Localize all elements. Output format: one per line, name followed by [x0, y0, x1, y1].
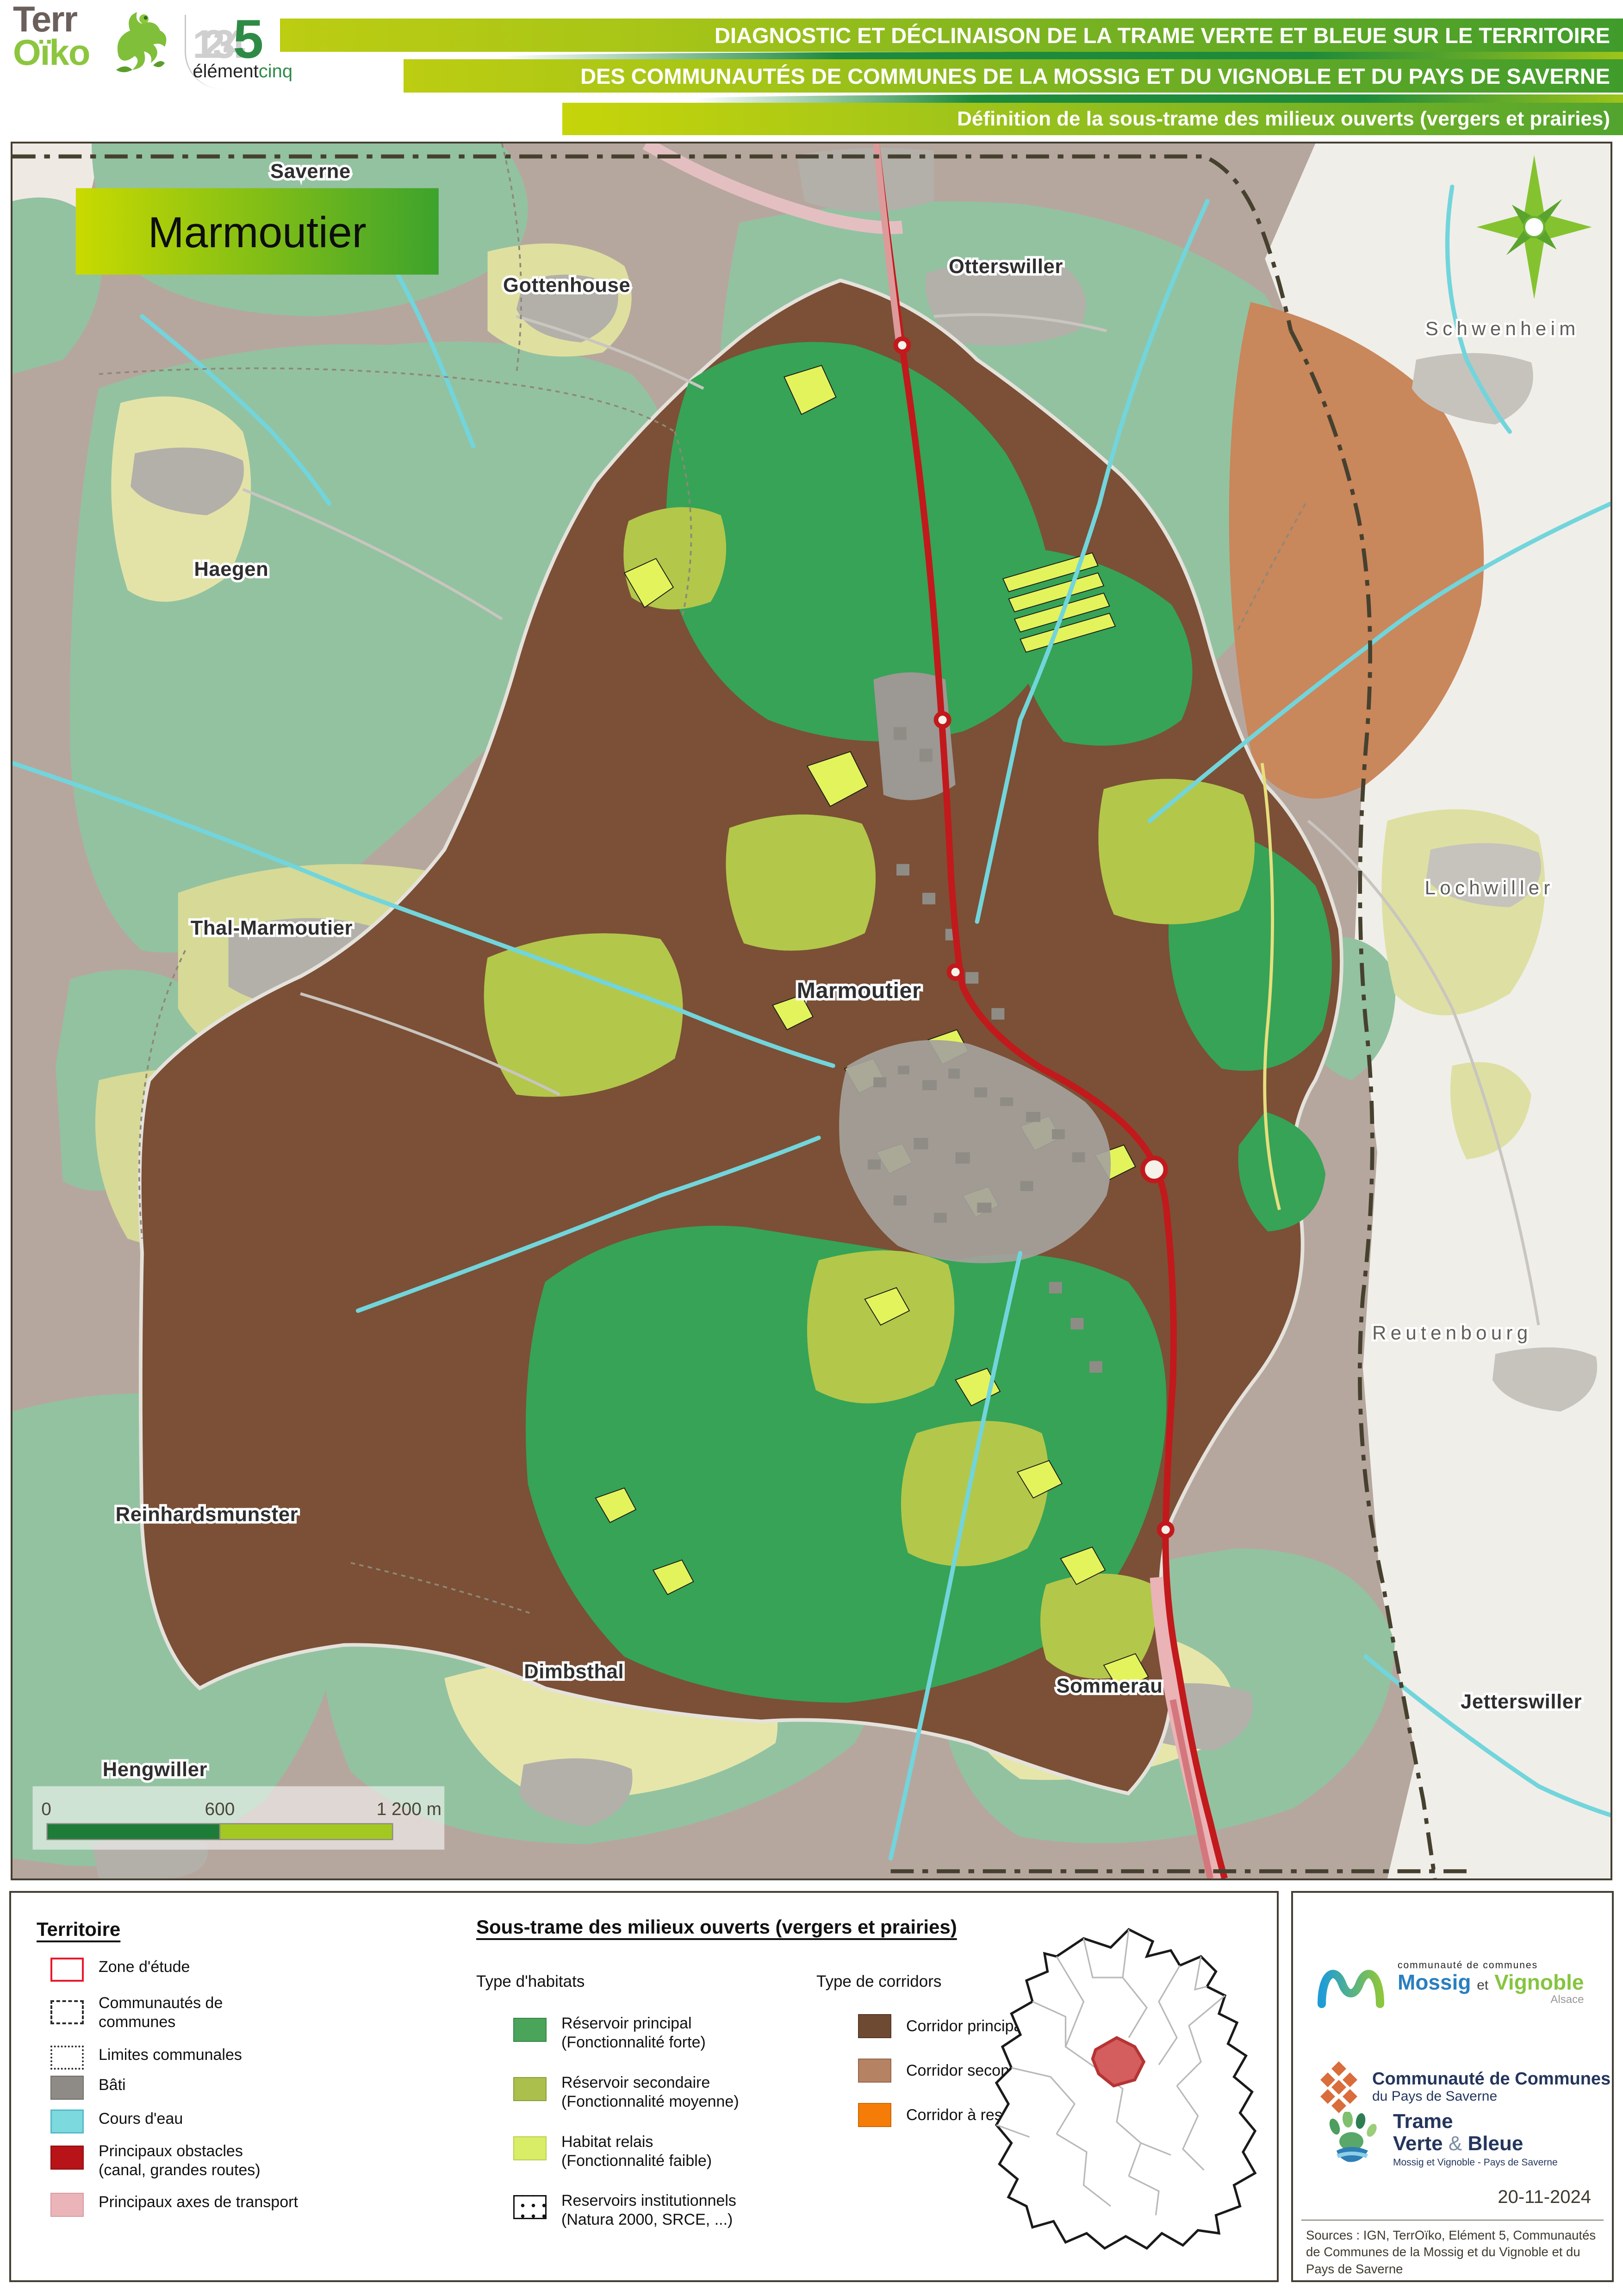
frog-icon	[102, 3, 172, 81]
reservoir-secondaire-swatch	[513, 2077, 547, 2101]
habitat-relais-swatch	[513, 2136, 547, 2160]
panel-divider	[1301, 2220, 1604, 2221]
header: Terr Oïko 12345 élémentcinq DIAGNOSTIC E…	[0, 0, 1623, 139]
legend-item-habitat-relais: Habitat relais (Fonctionnalité faible)	[513, 2133, 712, 2171]
legend-item-limites: Limites communales	[50, 2046, 242, 2070]
cours-eau-swatch	[50, 2109, 84, 2134]
elementcinq-five: 5	[233, 9, 264, 70]
reservoir-principal-swatch	[513, 2018, 547, 2042]
town-label: Reutenbourg	[1372, 1322, 1532, 1344]
map-title-line1: DIAGNOSTIC ET DÉCLINAISON DE LA TRAME VE…	[715, 23, 1610, 48]
zone-etude-label: Zone d'étude	[99, 1958, 190, 1977]
scale-label-end: 1 200 m	[377, 1799, 442, 1819]
map-canvas[interactable]: Saverne Gottenhouse Otterswiller Schwenh…	[12, 143, 1611, 1878]
corridor-secondaire-swatch	[858, 2059, 891, 2083]
tvb-line1: Trame	[1393, 2110, 1558, 2133]
map-title-box: Marmoutier	[76, 188, 439, 275]
legend-item-axes: Principaux axes de transport	[50, 2193, 298, 2217]
legend-item-obstacles: Principaux obstacles (canal, grandes rou…	[50, 2142, 261, 2180]
limites-swatch	[50, 2046, 84, 2070]
town-label: Otterswiller	[949, 256, 1063, 278]
mossig-vignoble-logo: communauté de communes Mossig et Vignobl…	[1316, 1958, 1584, 2009]
obstacles-swatch	[50, 2146, 84, 2170]
legend-item-reservoirs-institutionnels: Reservoirs institutionnels (Natura 2000,…	[513, 2191, 736, 2230]
legend-territoire-heading: Territoire	[37, 1918, 120, 1940]
reservoir-secondaire-label: Réservoir secondaire (Fonctionnalité moy…	[561, 2073, 739, 2112]
saverne-diamonds-icon	[1318, 2059, 1360, 2115]
map-frame: Saverne Gottenhouse Otterswiller Schwenh…	[11, 142, 1612, 1880]
town-label: Sommerau	[1056, 1675, 1163, 1697]
legend-soustrame-heading: Sous-trame des milieux ouverts (vergers …	[476, 1916, 957, 1938]
trame-verte-bleue-logo: Trame Verte & Bleue Mossig et Vignoble -…	[1325, 2110, 1558, 2168]
legend-item-zone-etude: Zone d'étude	[50, 1958, 190, 1982]
bati-label: Bâti	[99, 2076, 126, 2095]
communautes-label: Communautés de communes	[99, 1994, 223, 2032]
town-label-marmoutier: Marmoutier	[797, 978, 921, 1003]
axes-swatch	[50, 2193, 84, 2217]
corridor-restaurer-swatch	[858, 2103, 891, 2127]
town-label: Haegen	[194, 558, 268, 580]
legend-item-bati: Bâti	[50, 2076, 126, 2100]
legend-item-communautes: Communautés de communes	[50, 1994, 223, 2032]
map-date: 20-11-2024	[1498, 2187, 1591, 2208]
town-label: Hengwiller	[103, 1759, 207, 1781]
town-label: Thal-Marmoutier	[191, 917, 353, 939]
town-label: Lochwiller	[1425, 877, 1555, 898]
legend-item-cours-eau: Cours d'eau	[50, 2109, 183, 2134]
legend-corridors-heading: Type de corridors	[816, 1972, 941, 1991]
obstacles-label: Principaux obstacles (canal, grandes rou…	[99, 2142, 261, 2180]
limites-label: Limites communales	[99, 2046, 242, 2065]
cours-eau-label: Cours d'eau	[99, 2109, 183, 2128]
map-title-text: Marmoutier	[148, 208, 367, 256]
communautes-swatch	[50, 2000, 84, 2024]
header-swoosh-2	[694, 94, 1623, 104]
terroiko-oiko: Oïko	[13, 32, 89, 73]
mossig-small-text: communauté de communes	[1398, 1960, 1584, 1971]
scale-bar: 0 600 1 200 m	[33, 1786, 445, 1850]
scale-label-mid: 600	[205, 1799, 235, 1819]
bati-swatch	[50, 2076, 84, 2100]
tvb-line2: Verte & Bleue	[1393, 2133, 1558, 2155]
credits-panel: communauté de communes Mossig et Vignobl…	[1291, 1891, 1614, 2282]
map-subtitle: Définition de la sous-trame des milieux …	[957, 107, 1610, 131]
reservoir-principal-label: Réservoir principal (Fonctionnalité fort…	[561, 2014, 706, 2053]
town-label: Schwenheim	[1425, 318, 1580, 339]
reservoirs-institutionnels-label: Reservoirs institutionnels (Natura 2000,…	[561, 2191, 736, 2230]
terroiko-wordmark: Terr Oïko	[13, 3, 89, 69]
elementcinq-word: élémentcinq	[193, 61, 331, 82]
legend-item-reservoir-principal: Réservoir principal (Fonctionnalité fort…	[513, 2014, 706, 2053]
title-band-2: DES COMMUNAUTÉS DE COMMUNES DE LA MOSSIG…	[404, 59, 1623, 93]
sources-text: Sources : IGN, TerrOïko, Elément 5, Comm…	[1306, 2227, 1600, 2277]
mossig-region: Alsace	[1398, 1993, 1584, 2006]
saverne-line1: Communauté de Communes	[1372, 2070, 1611, 2089]
town-label: Saverne	[270, 161, 351, 183]
tvb-text: Trame Verte & Bleue Mossig et Vignoble -…	[1393, 2110, 1558, 2168]
saverne-text: Communauté de Communes du Pays de Savern…	[1372, 2070, 1611, 2104]
tvb-paw-icon	[1325, 2112, 1381, 2167]
legend-item-reservoir-secondaire: Réservoir secondaire (Fonctionnalité moy…	[513, 2073, 739, 2112]
town-label: Reinhardsmunster	[116, 1504, 298, 1526]
habitat-relais-label: Habitat relais (Fonctionnalité faible)	[561, 2133, 712, 2171]
mossig-m-icon	[1316, 1958, 1386, 2009]
mossig-name: Mossig et Vignoble	[1398, 1971, 1584, 1993]
zone-etude-swatch	[50, 1958, 84, 1982]
town-label: Dimbsthal	[524, 1660, 624, 1683]
title-band-1: DIAGNOSTIC ET DÉCLINAISON DE LA TRAME VE…	[280, 19, 1623, 52]
page: Terr Oïko 12345 élémentcinq DIAGNOSTIC E…	[0, 0, 1623, 2296]
saverne-line2: du Pays de Saverne	[1372, 2089, 1611, 2104]
reservoirs-institutionnels-swatch	[513, 2195, 547, 2219]
subtitle-band: Définition de la sous-trame des milieux …	[562, 103, 1623, 135]
mossig-text: communauté de communes Mossig et Vignobl…	[1398, 1960, 1584, 2006]
town-label: Gottenhouse	[503, 275, 630, 297]
legend-habitats-heading: Type d'habitats	[476, 1972, 585, 1991]
inset-outer-boundary	[996, 1929, 1255, 2248]
legend-box: Territoire Zone d'étude Communautés de c…	[9, 1891, 1279, 2282]
tvb-subtitle: Mossig et Vignoble - Pays de Saverne	[1393, 2157, 1558, 2168]
map-title-line2: DES COMMUNAUTÉS DE COMMUNES DE LA MOSSIG…	[580, 63, 1610, 89]
town-label: Jetterswiller	[1461, 1691, 1582, 1713]
scale-label-start: 0	[41, 1799, 51, 1819]
corridor-principal-swatch	[858, 2014, 891, 2038]
axes-label: Principaux axes de transport	[99, 2193, 298, 2212]
elementcinq-numbers: 12345	[193, 22, 263, 67]
locator-inset-map	[976, 1911, 1281, 2272]
pays-saverne-logo: Communauté de Communes du Pays de Savern…	[1318, 2059, 1611, 2115]
